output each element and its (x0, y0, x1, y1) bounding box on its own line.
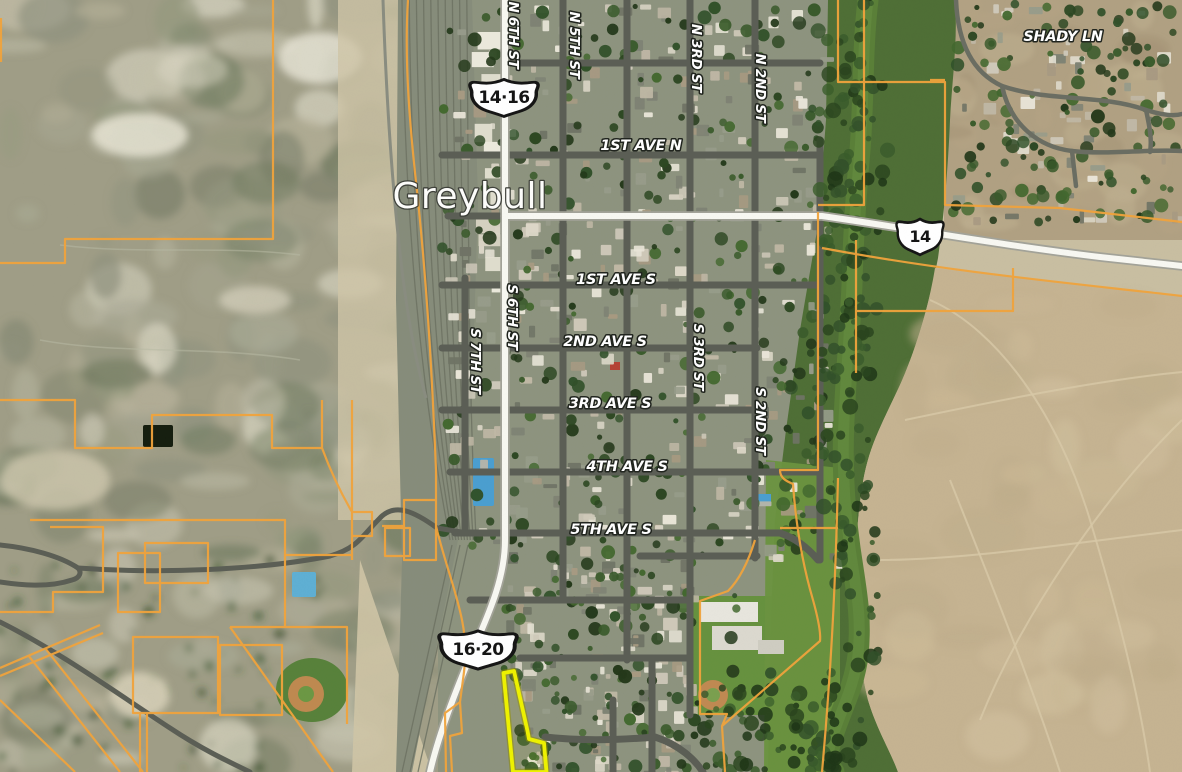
satellite-map-canvas[interactable]: Greybull 1ST AVE N 1ST AVE S 2ND AVE S 3… (0, 0, 1182, 772)
pond (143, 425, 173, 447)
street-label-n-3rd-st: N 3RD ST (688, 24, 704, 94)
pool (292, 572, 316, 597)
street-label-s-2nd-st: S 2ND ST (752, 387, 768, 457)
shield-number: 16·20 (452, 640, 504, 660)
street-label-5th-ave-s: 5TH AVE S (570, 522, 651, 538)
city-label-greybull: Greybull (392, 176, 547, 217)
street-label-s-3rd-st: S 3RD ST (690, 324, 706, 393)
ballfield-infield (298, 686, 314, 702)
school-building (700, 602, 758, 622)
map-viewport[interactable]: Greybull 1ST AVE N 1ST AVE S 2ND AVE S 3… (0, 0, 1182, 772)
school-building (758, 640, 784, 654)
street-label-3rd-ave-s: 3RD AVE S (569, 396, 652, 412)
street-label-n-5th-st: N 5TH ST (566, 11, 582, 80)
street-label-n-2nd-st: N 2ND ST (752, 53, 768, 124)
street-label-1st-ave-s: 1ST AVE S (576, 272, 656, 288)
street-label-s-7th-st: S 7TH ST (467, 328, 483, 396)
street-label-4th-ave-s: 4TH AVE S (585, 459, 667, 475)
street-label-2nd-ave-s: 2ND AVE S (563, 334, 646, 350)
shield-number: 14·16 (478, 88, 529, 108)
street-label-s-6th-st: S 6TH ST (504, 284, 520, 352)
street-label-shady-ln: SHADY LN (1023, 29, 1102, 45)
street-label-n-6th-st: N 6TH ST (505, 1, 521, 70)
shield-number: 14 (909, 227, 931, 246)
street-label-1st-ave-n: 1ST AVE N (600, 138, 681, 154)
